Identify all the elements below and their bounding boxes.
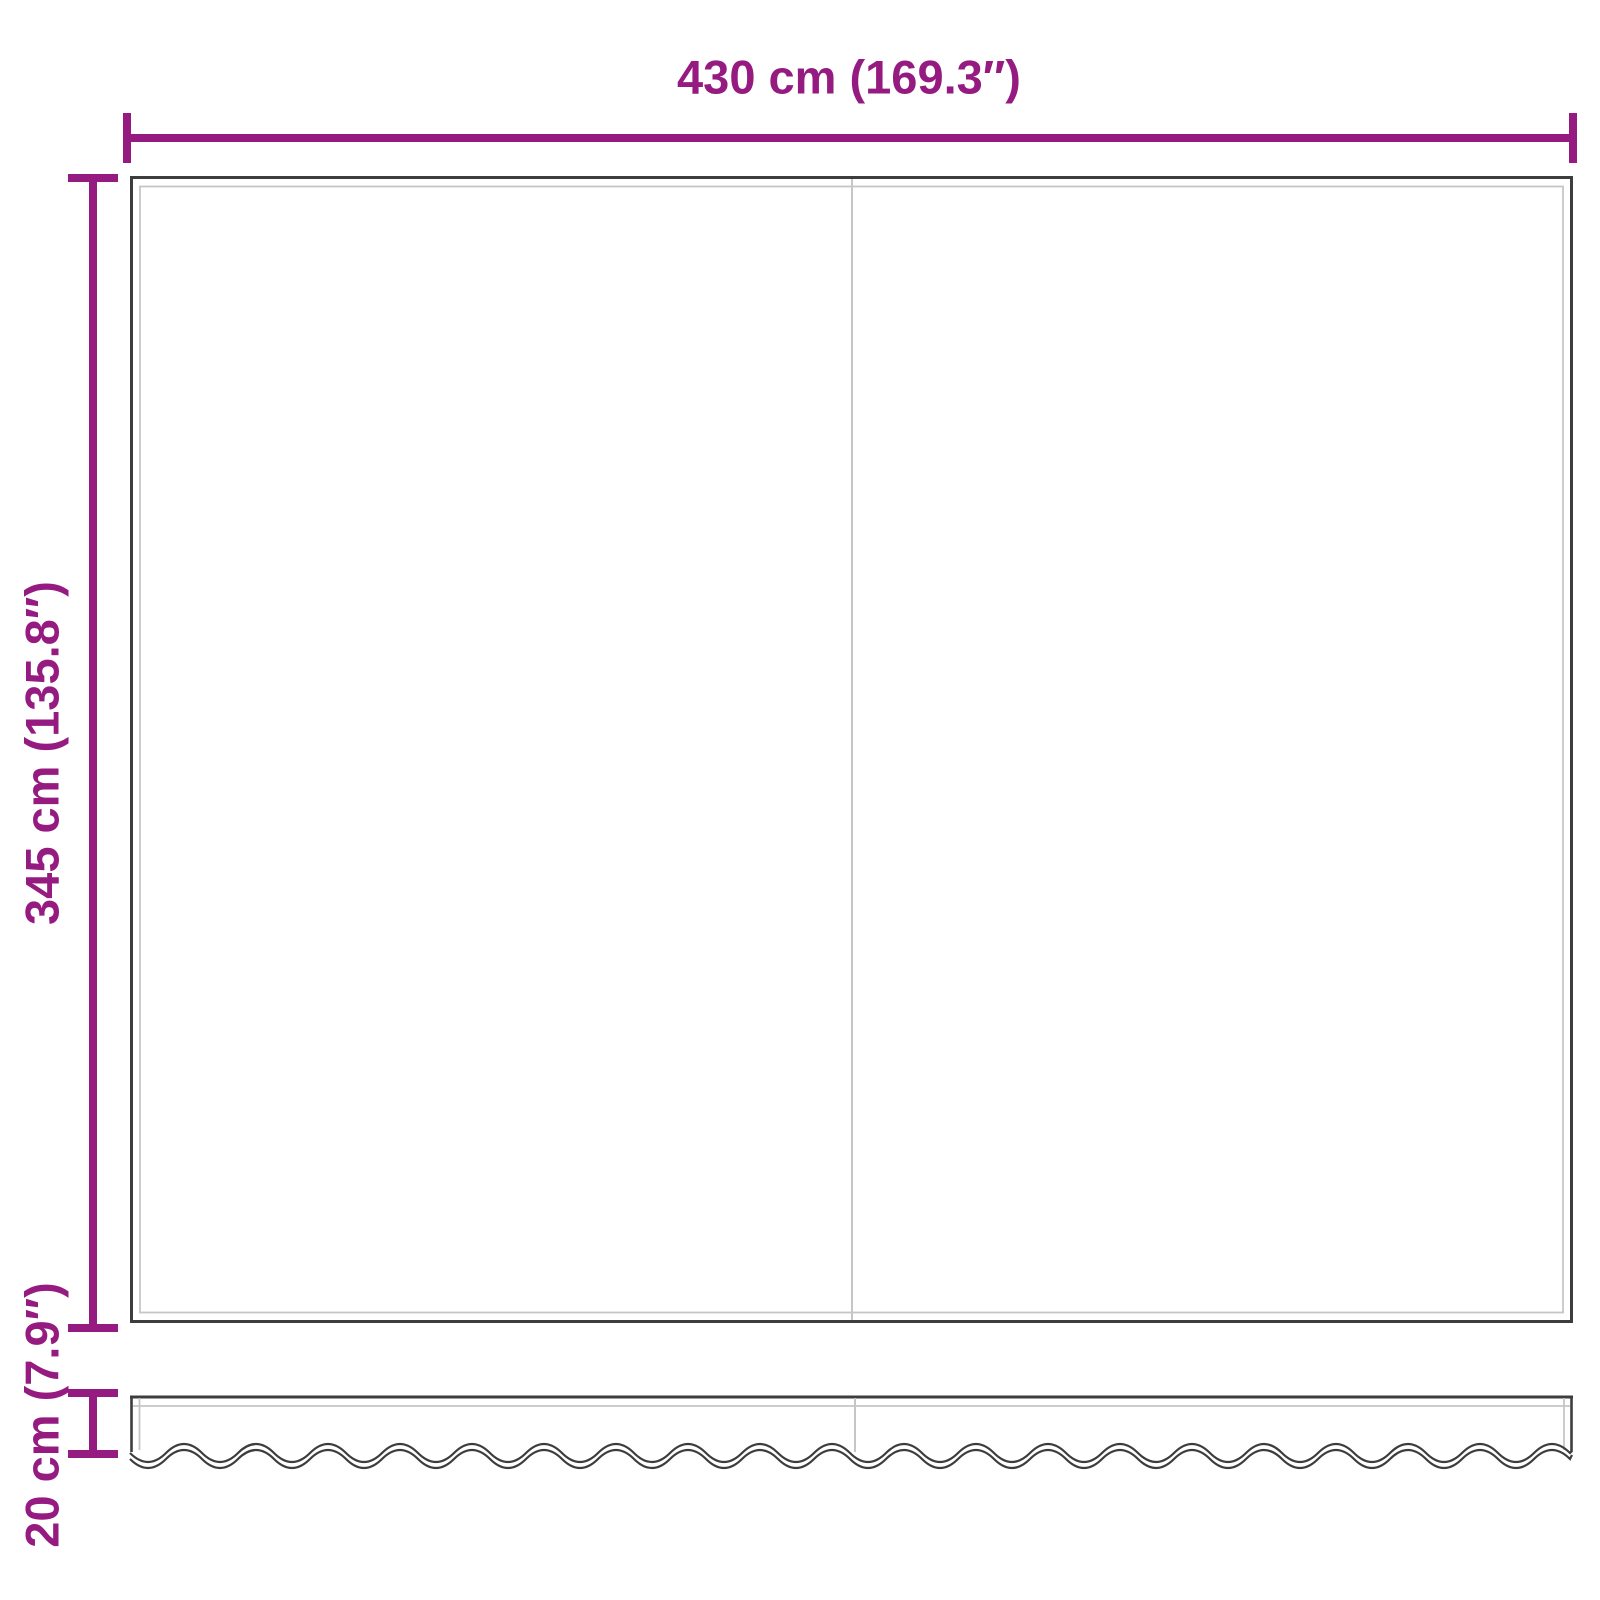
dimension-diagram: 430 cm (169.3″) 345 cm (135.8″) 20 cm (7…	[0, 0, 1600, 1600]
height-dimension	[68, 178, 118, 1328]
valance-dimension	[68, 1393, 118, 1454]
valance-dimension-label: 20 cm (7.9″)	[16, 1282, 69, 1547]
width-dimension-label: 430 cm (169.3″)	[677, 51, 1021, 104]
fabric-panel	[132, 178, 1572, 1322]
height-dimension-label: 345 cm (135.8″)	[16, 581, 69, 925]
valance-strip	[130, 1396, 1573, 1468]
width-dimension	[127, 113, 1573, 163]
